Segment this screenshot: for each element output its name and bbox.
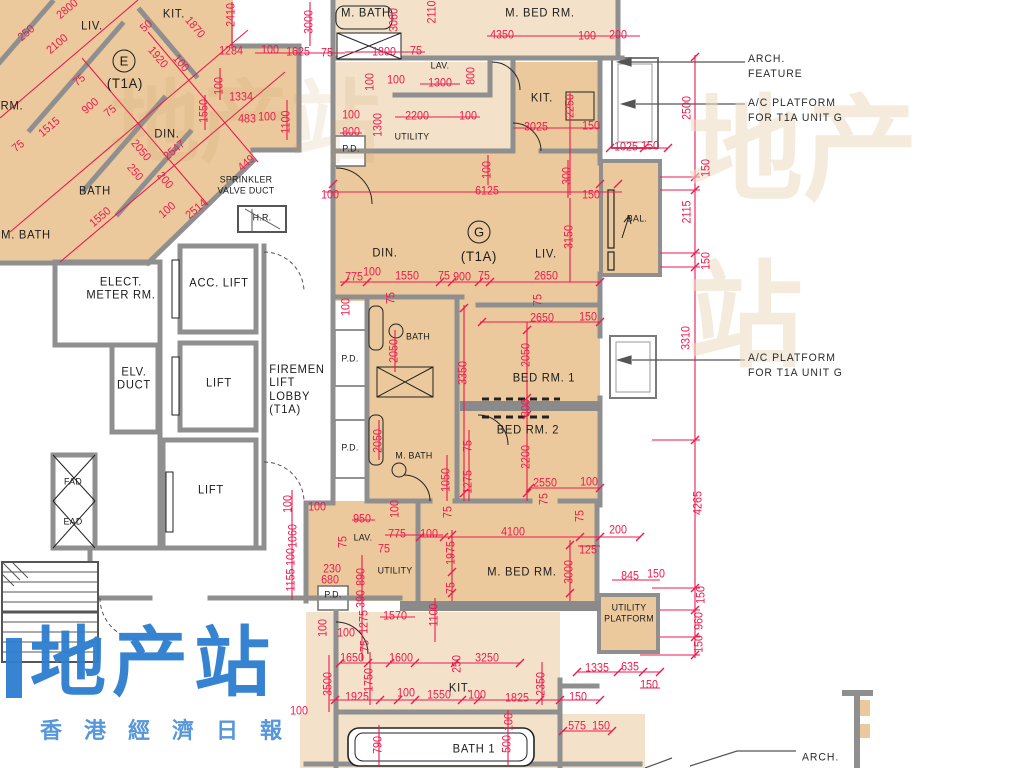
dimension-label: 2050 [389, 339, 401, 363]
dimension-label: 2200 [521, 445, 533, 469]
dimension-label: 100 [397, 688, 415, 700]
dimension-label: 100 [258, 112, 276, 124]
dimension-label: 1025 [614, 142, 638, 154]
dimension-label: 100 [365, 73, 377, 91]
room-label: M. BATH [395, 452, 432, 463]
dimension-label: 75 [533, 294, 545, 306]
dimension-label: 1975 [446, 541, 458, 565]
room-label: UTILITY PLATFORM [604, 603, 654, 624]
dimension-label: 75 [378, 544, 390, 556]
room-label: DIN. [372, 246, 397, 259]
dimension-label: 1625 [286, 47, 310, 59]
unit-badge: G [468, 221, 491, 244]
dimension-label: 100 [261, 45, 279, 57]
dimension-label: 6125 [475, 186, 499, 198]
dimension-label: 3350 [458, 361, 470, 385]
room-label: M. BATH [1, 228, 51, 241]
dimension-label: 3310 [681, 326, 693, 350]
dimension-label: 150 [701, 159, 713, 177]
dimension-label: 775 [345, 272, 363, 284]
dimension-label: 75 [321, 48, 333, 60]
room-label: ELV. DUCT [117, 366, 151, 393]
dimension-label: 1284 [219, 46, 243, 58]
room-label: P.D. [342, 145, 359, 156]
dimension-label: 2650 [534, 271, 558, 283]
dimension-label: 790 [373, 736, 385, 754]
dimension-label: 3000 [304, 10, 316, 34]
dimension-label: 300 [562, 167, 574, 185]
dimension-label: 100 [387, 75, 405, 87]
dimension-label: 100 [290, 706, 308, 718]
dimension-label: 100 [580, 477, 598, 489]
dimension-label: 75 [443, 506, 455, 518]
room-label: KIT. [163, 7, 185, 20]
room-label: P.D. [341, 355, 358, 366]
dimension-label: 100 [482, 161, 494, 179]
dimension-label: 3150 [564, 225, 576, 249]
room-label: M. BED RM. [505, 6, 574, 19]
room-label: UTILITY [395, 133, 430, 144]
dimension-label: 1100 [281, 110, 293, 133]
floor-plan-page: 地产站 地产站 LIV.KIT.E(T1A)DIN.RM.BATHM. BATH… [0, 0, 1024, 768]
dimension-label: 1550 [427, 690, 451, 702]
dimension-label: 1600 [389, 653, 413, 665]
dimension-label: 2500 [682, 96, 694, 120]
dimension-label: 100 [214, 77, 226, 95]
dimension-label: 1800 [372, 47, 396, 59]
dimension-label: 4100 [501, 527, 525, 539]
dimension-label: 1100 [429, 603, 441, 626]
dimension-label: 2200 [405, 111, 429, 123]
dimension-label: 100 [342, 110, 360, 122]
room-label: BATH 1 [453, 742, 496, 755]
dimension-label: 1060 [288, 524, 300, 548]
room-label: LIFT [198, 483, 224, 496]
dimension-label: 75 [539, 493, 551, 505]
dimension-label: 890 [356, 568, 368, 586]
dimension-label: 1825 [505, 693, 529, 705]
room-label: LAV. [431, 62, 450, 73]
dimension-label: 150 [569, 692, 587, 704]
dimension-label: 2050 [373, 429, 385, 453]
watermark-title: 地产站 [30, 626, 276, 702]
unit-badge: E [113, 50, 136, 73]
dimension-label: 150 [694, 635, 706, 653]
room-label: ELECT. METER RM. [86, 276, 155, 303]
dimension-label: 150 [696, 586, 708, 604]
dimension-label: 150 [579, 312, 597, 324]
dimension-label: 4265 [693, 491, 705, 515]
room-label: EAD [63, 518, 82, 529]
dimension-label: 483 [238, 114, 256, 126]
room-label: (T1A) [107, 76, 143, 92]
dimension-label: 75 [386, 292, 398, 304]
dimension-label: 960 [694, 612, 706, 630]
dimension-label: 2350 [536, 672, 548, 696]
dimension-label: 100 [420, 529, 438, 541]
dimension-label: 1275 [359, 610, 371, 634]
dimension-label: 775 [388, 529, 406, 541]
dimension-label: 100 [578, 31, 596, 43]
dimension-label: 3025 [524, 122, 548, 134]
dimension-label: 75 [438, 271, 450, 283]
dimension-label: 2250 [565, 94, 577, 118]
watermark-partial-glyph [6, 638, 22, 698]
dimension-label: 100 [318, 619, 330, 637]
room-label: P.D. [341, 444, 358, 455]
dimension-label: 100 [390, 500, 402, 518]
dimension-label: 1275 [463, 470, 475, 494]
dimension-label: 2550 [533, 478, 557, 490]
room-label: KIT. [531, 91, 553, 104]
dimension-label: 1300 [373, 113, 385, 137]
dimension-label: 300 [521, 399, 533, 417]
dimension-label: 150 [641, 141, 659, 153]
dimension-label: 100 [341, 298, 353, 316]
dimension-label: 1925 [345, 692, 369, 704]
dimension-label: 2650 [530, 313, 554, 325]
dimension-label: 150 [582, 121, 600, 133]
dimension-label: 4350 [490, 30, 514, 42]
dimension-label: 3000 [564, 560, 576, 584]
dimension-label: 125 [579, 545, 597, 557]
dimension-label: 75 [575, 510, 587, 522]
dimension-label: 3060 [389, 8, 401, 32]
dimension-label: 250 [452, 655, 464, 673]
room-label: (T1A) [461, 249, 497, 265]
dimension-label: 100 [468, 690, 486, 702]
dimension-label: 75 [463, 440, 475, 452]
dimension-label: 150 [582, 190, 600, 202]
dimension-label: 1570 [383, 611, 407, 623]
room-label: ACC. LIFT [189, 276, 248, 289]
dimension-label: 100 [459, 111, 477, 123]
dimension-label: 390 [356, 590, 368, 608]
dimension-label: 950 [353, 514, 371, 526]
annotation-label: A/C PLATFORM FOR T1A UNIT G [748, 96, 843, 126]
dimension-label: 1050 [441, 468, 453, 492]
dimension-label: 575 [568, 721, 586, 733]
annotation-label: ARCH. [802, 751, 839, 766]
room-label: DIN. [154, 127, 179, 140]
dimension-label: 100 [308, 502, 326, 514]
dimension-label: 1334 [229, 92, 253, 104]
annotation-label: A/C PLATFORM FOR T1A UNIT G [748, 351, 843, 381]
room-label: P.D. [324, 591, 341, 602]
dimension-label: 100 [283, 495, 295, 513]
dimension-label: 2410 [226, 3, 238, 27]
room-label: RM. [1, 99, 24, 112]
dimension-label: 680 [321, 575, 339, 587]
room-label: LIV. [81, 19, 103, 32]
dimension-label: 1550 [395, 271, 419, 283]
room-label: FAD [64, 478, 82, 489]
dimension-label: 1155 [286, 568, 298, 591]
dimension-label: 75 [478, 271, 490, 283]
dimension-label: 1335 [585, 663, 609, 675]
dimension-label: 500 [502, 735, 514, 753]
room-label: BATH [406, 333, 430, 344]
dimension-label: 800 [342, 127, 360, 139]
dimension-label: 1300 [428, 78, 452, 90]
dimension-label: 635 [621, 662, 639, 674]
dimension-label: 200 [609, 525, 627, 537]
dimension-label: 2115 [682, 200, 694, 223]
annotation-label: ARCH. FEATURE [748, 52, 803, 82]
dimension-label: 800 [466, 67, 478, 85]
dimension-label: 900 [453, 272, 471, 284]
dimension-label: 2110 [427, 0, 439, 23]
dimension-label: 75 [360, 640, 372, 652]
room-label: H.R. [253, 214, 272, 225]
dimension-label: 200 [609, 30, 627, 42]
room-label: BED RM. 2 [497, 423, 560, 436]
dimension-label: 75 [338, 536, 350, 548]
room-label: FIREMEN LIFT LOBBY (T1A) [269, 363, 324, 417]
dimension-label: 150 [647, 569, 665, 581]
room-label: LIFT [206, 376, 232, 389]
dimension-label: 2050 [521, 343, 533, 367]
room-label: SPRINKLER VALVE DUCT [218, 175, 275, 196]
dimension-label: 150 [592, 721, 610, 733]
dimension-label: 100 [286, 548, 298, 566]
dimension-label: 3250 [475, 653, 499, 665]
dimension-label: 100 [504, 713, 516, 731]
dimension-label: 845 [621, 571, 639, 583]
dimension-label: 1550 [199, 99, 211, 123]
watermark-subtitle: 香港經濟日報 [40, 718, 304, 744]
dimension-label: 1650 [340, 653, 364, 665]
dimension-label: 75 [446, 582, 458, 594]
room-label: LIV. [535, 247, 557, 260]
dimension-label: 150 [640, 680, 658, 692]
dimension-label: 150 [701, 252, 713, 270]
room-label: BAL. [627, 215, 647, 226]
room-label: LAV. [354, 534, 373, 545]
dimension-label: 3500 [323, 672, 335, 696]
dimension-label: 75 [410, 46, 422, 58]
dimension-label: 100 [321, 190, 339, 202]
dimension-label: 100 [363, 267, 381, 279]
room-label: M. BED RM. [487, 565, 556, 578]
room-label: BATH [79, 184, 111, 197]
room-label: UTILITY [378, 567, 413, 578]
dimension-label: 1750 [364, 668, 376, 692]
room-label: BED RM. 1 [513, 371, 576, 384]
dimension-label: 100 [337, 628, 355, 640]
room-label: M. BATH [341, 6, 391, 19]
